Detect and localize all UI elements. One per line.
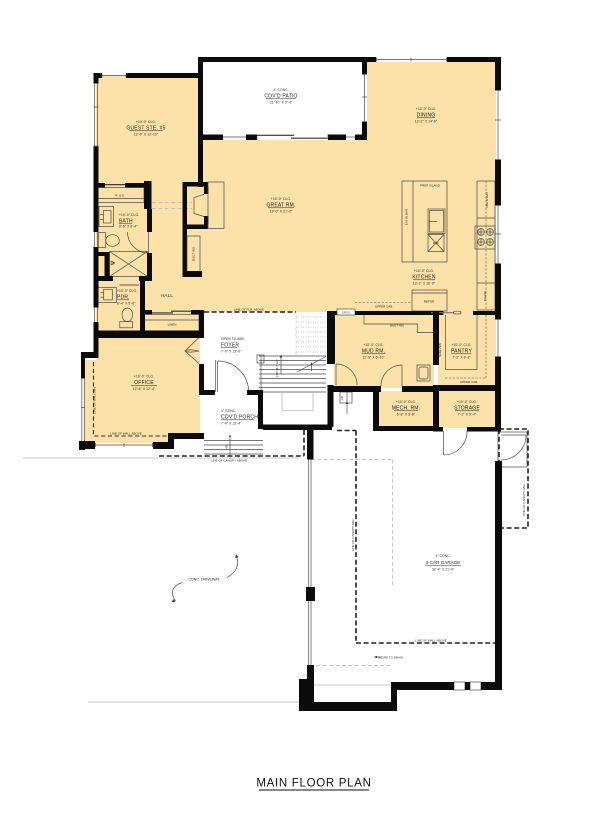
svg-text:DBL OVEN: DBL OVEN (485, 192, 489, 207)
svg-text:SLOPE TO DRAIN: SLOPE TO DRAIN (378, 655, 403, 659)
svg-text:+10'-0" CLG.: +10'-0" CLG. (117, 289, 137, 293)
svg-text:13'-2" X 16'-0": 13'-2" X 16'-0" (413, 282, 436, 286)
svg-text:32'-4" X 21'-4": 32'-4" X 21'-4" (432, 568, 455, 572)
svg-text:13'-2" X 14'-6": 13'-2" X 14'-6" (415, 120, 438, 124)
svg-text:+10'-0" CLG.: +10'-0" CLG. (414, 269, 434, 273)
svg-text:12'-6" X 12'-4": 12'-6" X 12'-4" (133, 387, 156, 391)
svg-text:LINE OF CANOPY ABV.: LINE OF CANOPY ABV. (351, 519, 355, 552)
svg-text:12'-6" X 12'-10": 12'-6" X 12'-10" (134, 133, 159, 137)
svg-text:19'-0" X 21'-0": 19'-0" X 21'-0" (270, 210, 293, 214)
svg-text:LINE OF WALL ABV.: LINE OF WALL ABV. (93, 386, 97, 414)
svg-text:7'-2" X 5'-4": 7'-2" X 5'-4" (458, 413, 477, 417)
svg-text:7'-2" X 9'-2": 7'-2" X 9'-2" (452, 356, 471, 360)
svg-text:+10'-0" CLG.: +10'-0" CLG. (136, 120, 156, 124)
svg-text:HALL: HALL (161, 293, 173, 298)
svg-text:EAT-IN BAR: EAT-IN BAR (405, 208, 409, 225)
svg-text:R. & S.: R. & S. (115, 194, 125, 198)
svg-text:OPEN TO ABV.: OPEN TO ABV. (221, 337, 245, 341)
svg-text:D.W.: D.W. (433, 241, 440, 245)
svg-text:CONC. DRIVEWAY: CONC. DRIVEWAY (188, 578, 220, 582)
svg-text:3-CAR GARAGE: 3-CAR GARAGE (426, 560, 461, 565)
svg-text:+10'-0" CLG.: +10'-0" CLG. (134, 375, 154, 379)
svg-text:LINE OF FLR. ABOVE: LINE OF FLR. ABOVE (234, 308, 264, 312)
svg-text:7'-4" X 13'-4": 7'-4" X 13'-4" (221, 422, 242, 426)
svg-text:4" CONC.: 4" CONC. (435, 554, 450, 558)
svg-text:LINE OF WALL ABOVE: LINE OF WALL ABOVE (415, 639, 446, 643)
svg-text:REFGR.: REFGR. (424, 300, 436, 304)
svg-text:LINEN: LINEN (168, 323, 177, 327)
svg-text:BUILT-INS: BUILT-INS (192, 247, 196, 261)
svg-text:OPN'G: OPN'G (342, 310, 350, 314)
svg-text:4" CONC.: 4" CONC. (221, 409, 236, 413)
svg-text:LINE OF CANOPY ABOVE: LINE OF CANOPY ABOVE (211, 459, 247, 463)
svg-text:PREP ISLAND: PREP ISLAND (420, 184, 441, 188)
svg-text:8'-6" X 8'-4": 8'-6" X 8'-4" (119, 225, 138, 229)
svg-text:12'-9" X 6'-10": 12'-9" X 6'-10" (362, 356, 385, 360)
svg-text:UPPER CAB.: UPPER CAB. (375, 305, 393, 309)
svg-text:6'-4" X 5'-6": 6'-4" X 5'-6" (117, 302, 136, 306)
svg-text:+10'-0" CLG.: +10'-0" CLG. (396, 400, 416, 404)
svg-text:6'-8" X 5'-8": 6'-8" X 5'-8" (397, 413, 416, 417)
svg-text:16R @ 7 3/4": 16R @ 7 3/4" (275, 359, 279, 377)
svg-text:UPPER CAB.: UPPER CAB. (460, 380, 478, 384)
svg-text:+10'-0" CLG.: +10'-0" CLG. (119, 213, 139, 217)
svg-text:LINE OF WALL ABOVE: LINE OF WALL ABOVE (110, 432, 141, 436)
svg-text:MAIN FLOOR PLAN: MAIN FLOOR PLAN (256, 778, 371, 790)
svg-text:+10'-0" CLG.: +10'-0" CLG. (416, 107, 436, 111)
svg-text:7'-0" X 13'-0": 7'-0" X 13'-0" (221, 350, 242, 354)
svg-text:+10'-0" CLG.: +10'-0" CLG. (457, 400, 477, 404)
svg-text:LINE OF CANOPY ABV.: LINE OF CANOPY ABV. (522, 484, 526, 517)
svg-text:+10'-0" CLG.: +10'-0" CLG. (451, 343, 471, 347)
svg-text:4" CONC.: 4" CONC. (273, 88, 288, 92)
svg-text:BUILT-INS: BUILT-INS (390, 324, 404, 328)
svg-text:21'-10" X 9'-4": 21'-10" X 9'-4" (270, 101, 293, 105)
svg-text:SHELVES: SHELVES (438, 343, 442, 357)
svg-text:+10'-0" CLG.: +10'-0" CLG. (363, 343, 383, 347)
svg-text:CHASE: CHASE (483, 291, 487, 301)
svg-text:+10'-0" CLG.: +10'-0" CLG. (271, 197, 291, 201)
